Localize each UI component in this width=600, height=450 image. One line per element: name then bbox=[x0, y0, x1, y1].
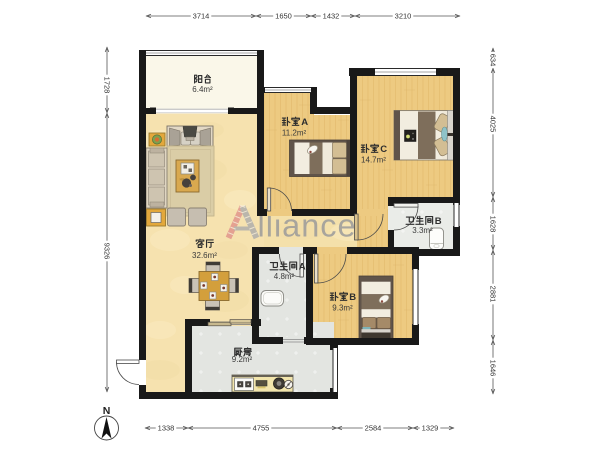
svg-text:N: N bbox=[103, 405, 111, 417]
svg-text:4025: 4025 bbox=[489, 116, 498, 133]
svg-text:1329: 1329 bbox=[422, 424, 439, 433]
svg-text:9.3m²: 9.3m² bbox=[332, 304, 353, 313]
svg-text:1650: 1650 bbox=[275, 12, 292, 21]
svg-text:9326: 9326 bbox=[103, 243, 112, 260]
svg-text:1646: 1646 bbox=[489, 360, 498, 377]
svg-text:634: 634 bbox=[489, 54, 498, 67]
svg-text:2881: 2881 bbox=[489, 286, 498, 303]
svg-text:1628: 1628 bbox=[489, 216, 498, 233]
svg-text:B: B bbox=[435, 216, 442, 227]
svg-text:4.8m²: 4.8m² bbox=[274, 272, 295, 281]
svg-text:6.4m²: 6.4m² bbox=[192, 85, 213, 94]
svg-text:1728: 1728 bbox=[103, 77, 112, 94]
svg-text:1432: 1432 bbox=[323, 12, 340, 21]
svg-text:3714: 3714 bbox=[193, 12, 210, 21]
svg-text:A: A bbox=[301, 117, 308, 128]
svg-text:A: A bbox=[299, 261, 306, 272]
svg-text:11.2m²: 11.2m² bbox=[282, 129, 307, 138]
svg-text:2584: 2584 bbox=[365, 424, 382, 433]
svg-text:1338: 1338 bbox=[158, 424, 175, 433]
svg-text:14.7m²: 14.7m² bbox=[361, 156, 386, 165]
svg-text:HG: HG bbox=[180, 178, 185, 182]
svg-text:3.3m²: 3.3m² bbox=[412, 226, 433, 235]
svg-text:3210: 3210 bbox=[395, 12, 412, 21]
svg-text:C: C bbox=[380, 144, 387, 155]
svg-text:32.6m²: 32.6m² bbox=[192, 251, 217, 260]
svg-text:B: B bbox=[349, 292, 356, 303]
svg-text:4755: 4755 bbox=[253, 424, 270, 433]
svg-text:9.2m²: 9.2m² bbox=[232, 355, 253, 364]
